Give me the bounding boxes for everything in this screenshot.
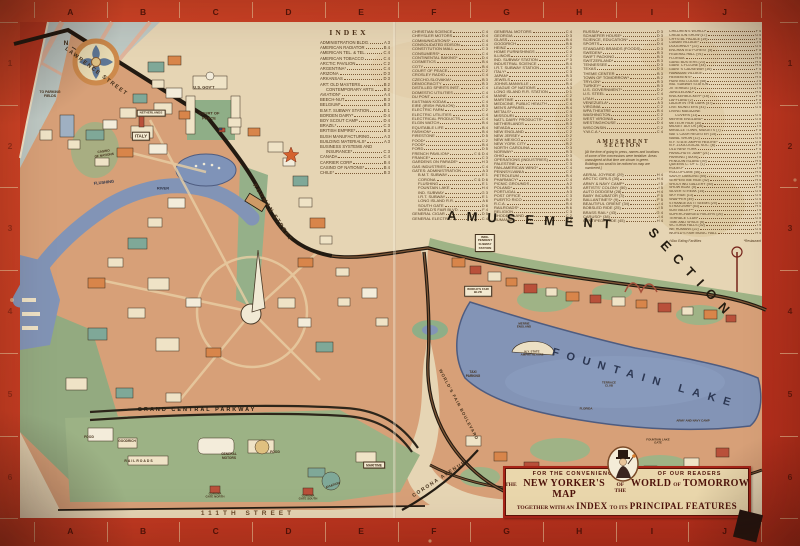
- grid-tick: [780, 518, 798, 519]
- grid-tick: [34, 522, 35, 542]
- cartouche-line1-right: OF OUR READERS: [658, 471, 722, 477]
- grid-tick: [761, 522, 762, 542]
- grid-tick: [0, 22, 18, 23]
- grid-tick: [107, 2, 108, 18]
- grid-letter-top: D: [252, 5, 325, 19]
- cartouche-text: TO ITS: [610, 505, 628, 511]
- grid-tick: [0, 270, 18, 271]
- eustace-tilley-medallion: [606, 445, 640, 488]
- cartouche-text: TOMORROW: [683, 478, 749, 489]
- cartouche-line1-left: FOR THE CONVENIENCE: [533, 471, 618, 477]
- grid-letter-top: C: [179, 5, 252, 19]
- grid-tick: [325, 522, 326, 542]
- grid-tick: [325, 2, 326, 18]
- grid-tick: [780, 270, 798, 271]
- grid-letter-bottom: B: [107, 524, 180, 538]
- grid-letter-bottom: H: [543, 524, 616, 538]
- compass-rose-icon: [72, 41, 117, 83]
- cartouche-text: INDEX: [576, 501, 608, 511]
- grid-tick: [543, 2, 544, 18]
- grid-number-left: 5: [2, 353, 18, 436]
- grid-tick: [252, 522, 253, 542]
- grid-letter-top: J: [688, 5, 761, 19]
- grid-tick: [688, 2, 689, 18]
- grid-letter-top: E: [325, 5, 398, 19]
- grid-tick: [616, 522, 617, 542]
- grid-tick: [398, 522, 399, 542]
- grid-tick: [0, 436, 18, 437]
- grid-letter-bottom: F: [398, 524, 471, 538]
- grid-tick: [780, 436, 798, 437]
- grid-tick: [470, 522, 471, 542]
- grid-tick: [780, 105, 798, 106]
- grid-letter-bottom: J: [688, 524, 761, 538]
- grid-tick: [0, 187, 18, 188]
- grid-letter-top: B: [107, 5, 180, 19]
- fold-crease: [393, 22, 396, 518]
- grid-tick: [616, 2, 617, 18]
- grid-letter-top: G: [470, 5, 543, 19]
- grid-tick: [543, 522, 544, 542]
- grid-tick: [780, 22, 798, 23]
- grid-tick: [780, 187, 798, 188]
- grid-tick: [761, 2, 762, 18]
- grid-number-right: 1: [782, 22, 798, 105]
- grid-number-right: 6: [782, 436, 798, 519]
- grid-tick: [0, 518, 18, 519]
- grid-tick: [107, 522, 108, 542]
- grid-letter-top: I: [616, 5, 689, 19]
- grid-letter-bottom: C: [179, 524, 252, 538]
- cartouche-text: THE: [505, 482, 517, 488]
- map-sheet: INDEX ADMINISTRATION BLDG.A 3AMERICAN RA…: [0, 0, 800, 546]
- grid-letter-top: F: [398, 5, 471, 19]
- grid-tick: [398, 2, 399, 18]
- grid-tick: [179, 522, 180, 542]
- cartouche-text: OF: [673, 482, 681, 488]
- cartouche-text: TOGETHER WITH AN: [517, 505, 574, 511]
- grid-tick: [0, 353, 18, 354]
- grid-tick: [252, 2, 253, 18]
- grid-number-left: 6: [2, 436, 18, 519]
- cartouche-line3: TOGETHER WITH ANINDEXTO ITSPRINCIPAL FEA…: [505, 501, 749, 511]
- grid-number-left: 4: [2, 270, 18, 353]
- grid-number-right: 4: [782, 270, 798, 353]
- cartouche-text: PRINCIPAL FEATURES: [630, 501, 737, 511]
- grid-letter-bottom: E: [325, 524, 398, 538]
- grid-letter-bottom: A: [34, 524, 107, 538]
- grid-letter-top: H: [543, 5, 616, 19]
- grid-tick: [470, 2, 471, 18]
- grid-tick: [179, 2, 180, 18]
- cartouche-text: NEW YORKER'S MAP: [519, 478, 610, 500]
- grid-tick: [0, 105, 18, 106]
- grid-number-left: 2: [2, 105, 18, 188]
- grid-letter-bottom: I: [616, 524, 689, 538]
- grid-tick: [34, 2, 35, 18]
- grid-number-right: 3: [782, 187, 798, 270]
- lagoon-of-nations: [176, 154, 236, 186]
- grid-letter-bottom: G: [470, 524, 543, 538]
- grid-number-right: 2: [782, 105, 798, 188]
- grid-tick: [688, 522, 689, 542]
- grid-number-left: 1: [2, 22, 18, 105]
- grid-tick: [780, 353, 798, 354]
- grid-letter-bottom: D: [252, 524, 325, 538]
- grid-number-right: 5: [782, 353, 798, 436]
- grid-letter-top: A: [34, 5, 107, 19]
- map-terrain: [0, 0, 800, 546]
- grid-number-left: 3: [2, 187, 18, 270]
